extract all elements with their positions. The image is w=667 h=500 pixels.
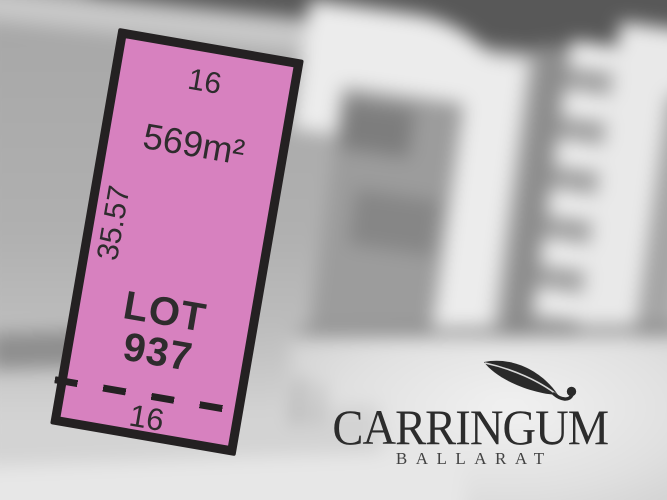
brand-name: CARRINGUM [332, 398, 607, 456]
leaf-icon [477, 354, 581, 404]
bg-building-blob [349, 189, 441, 255]
lot-top-dimension: 16 [118, 51, 291, 113]
brand-location: BALLARAT [322, 449, 618, 469]
lot-area-label: 569m² [107, 109, 282, 179]
lot-advert-image: 16 569m² 35.57 LOT 937 16 CARRINGUM BALL… [0, 0, 667, 500]
bg-building-blob [339, 100, 415, 157]
brand-logo: CARRINGUM BALLARAT [322, 354, 618, 484]
lot-side-dimension: 35.57 [91, 183, 137, 263]
lot-number-label: LOT 937 [71, 278, 252, 388]
